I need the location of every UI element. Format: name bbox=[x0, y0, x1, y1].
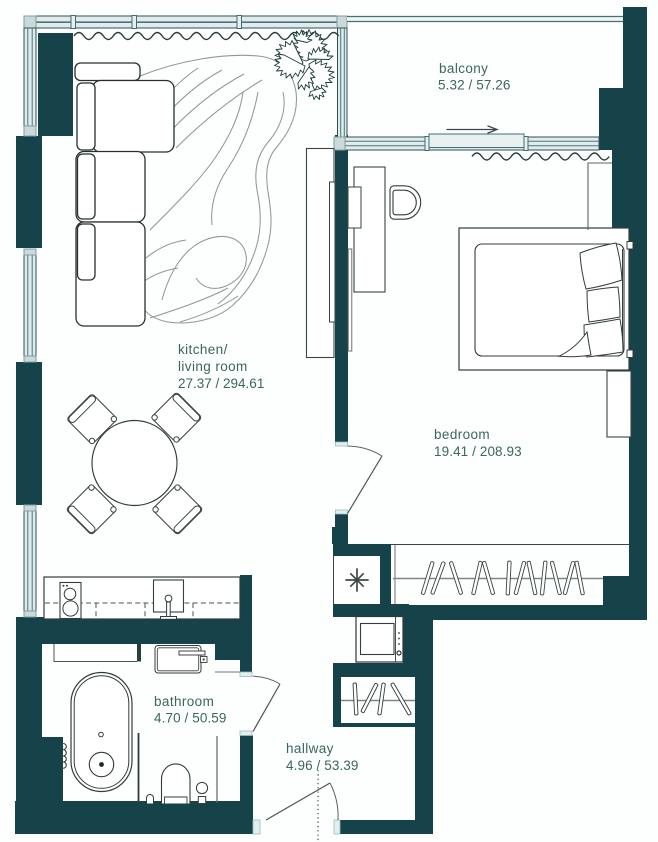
svg-text:bedroom: bedroom bbox=[434, 427, 490, 442]
svg-text:living room: living room bbox=[178, 359, 248, 374]
svg-text:4.96 / 53.39: 4.96 / 53.39 bbox=[286, 758, 359, 773]
svg-text:5.32 / 57.26: 5.32 / 57.26 bbox=[438, 78, 511, 93]
svg-text:balcony: balcony bbox=[439, 61, 488, 76]
svg-text:19.41 / 208.93: 19.41 / 208.93 bbox=[434, 444, 522, 459]
svg-text:hallway: hallway bbox=[286, 741, 334, 756]
svg-text:4.70 / 50.59: 4.70 / 50.59 bbox=[154, 711, 227, 726]
svg-text:kitchen/: kitchen/ bbox=[178, 342, 228, 357]
svg-text:bathroom: bathroom bbox=[154, 694, 214, 709]
svg-text:27.37 / 294.61: 27.37 / 294.61 bbox=[178, 376, 264, 391]
